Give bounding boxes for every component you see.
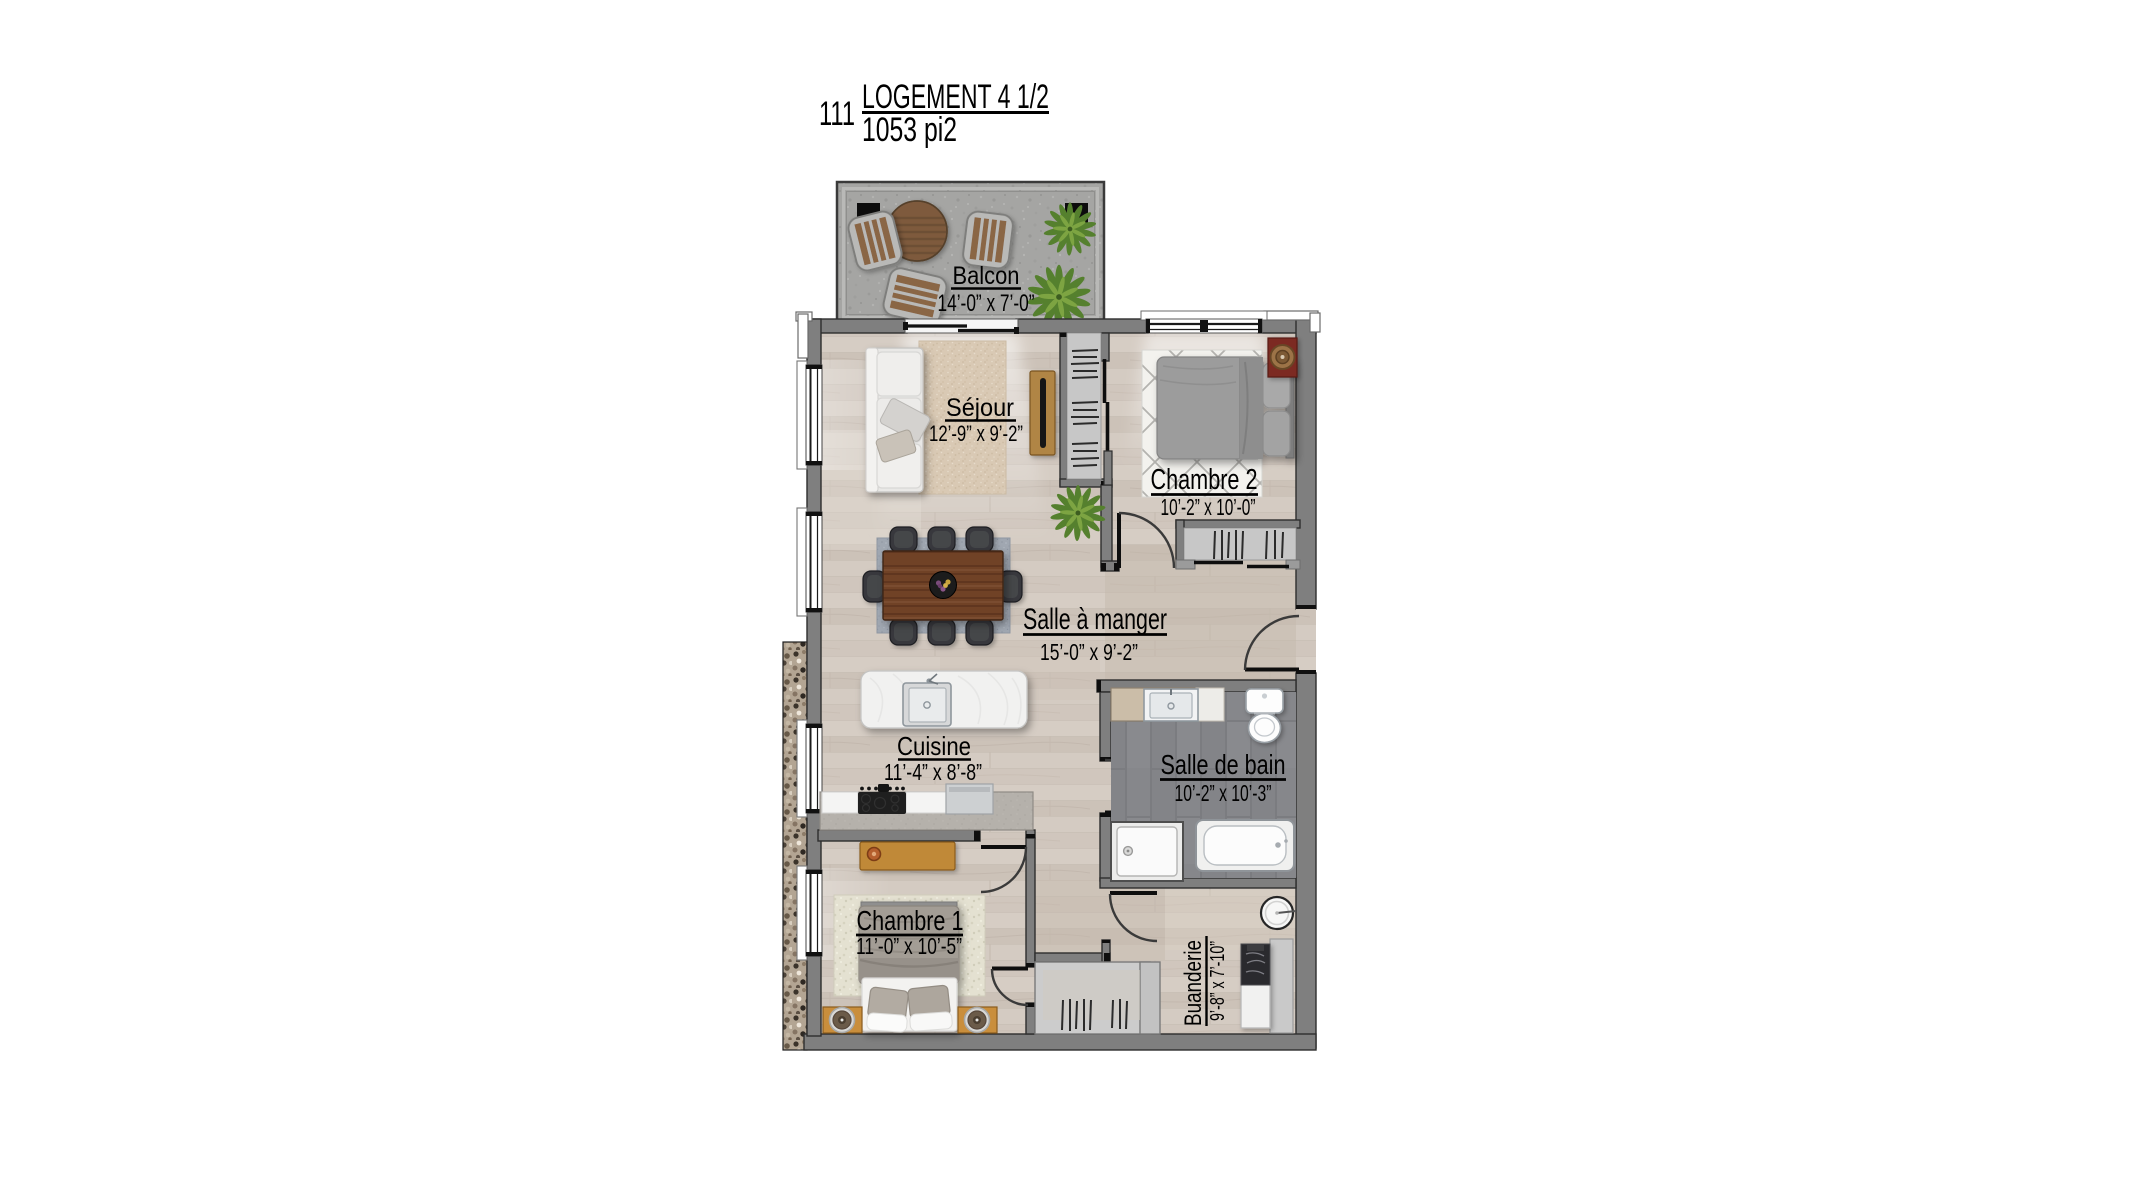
svg-text:15’-0” x 9’-2”: 15’-0” x 9’-2” bbox=[1040, 639, 1138, 665]
svg-text:10’-2” x 10’-0”: 10’-2” x 10’-0” bbox=[1161, 494, 1256, 520]
svg-text:Séjour: Séjour bbox=[946, 394, 1014, 422]
svg-text:11’-4” x 8’-8”: 11’-4” x 8’-8” bbox=[884, 759, 982, 785]
svg-text:Chambre 2: Chambre 2 bbox=[1151, 464, 1258, 496]
svg-text:11’-0” x 10’-5”: 11’-0” x 10’-5” bbox=[856, 933, 962, 959]
svg-text:Buanderie: Buanderie bbox=[1180, 940, 1207, 1026]
svg-text:Balcon: Balcon bbox=[953, 262, 1020, 290]
svg-text:111: 111 bbox=[819, 95, 855, 133]
svg-text:14’-0” x 7’-0”: 14’-0” x 7’-0” bbox=[938, 290, 1035, 317]
svg-text:Chambre 1: Chambre 1 bbox=[857, 905, 964, 936]
svg-text:10’-2” x 10’-3”: 10’-2” x 10’-3” bbox=[1175, 780, 1272, 806]
svg-text:Salle de bain: Salle de bain bbox=[1161, 749, 1286, 780]
svg-text:Salle à manger: Salle à manger bbox=[1023, 603, 1167, 636]
svg-text:9’-8” x 7’-10”: 9’-8” x 7’-10” bbox=[1207, 941, 1229, 1021]
svg-text:Cuisine: Cuisine bbox=[897, 731, 971, 761]
svg-text:12’-9” x 9’-2”: 12’-9” x 9’-2” bbox=[929, 421, 1023, 446]
svg-text:1053 pi2: 1053 pi2 bbox=[862, 111, 957, 149]
